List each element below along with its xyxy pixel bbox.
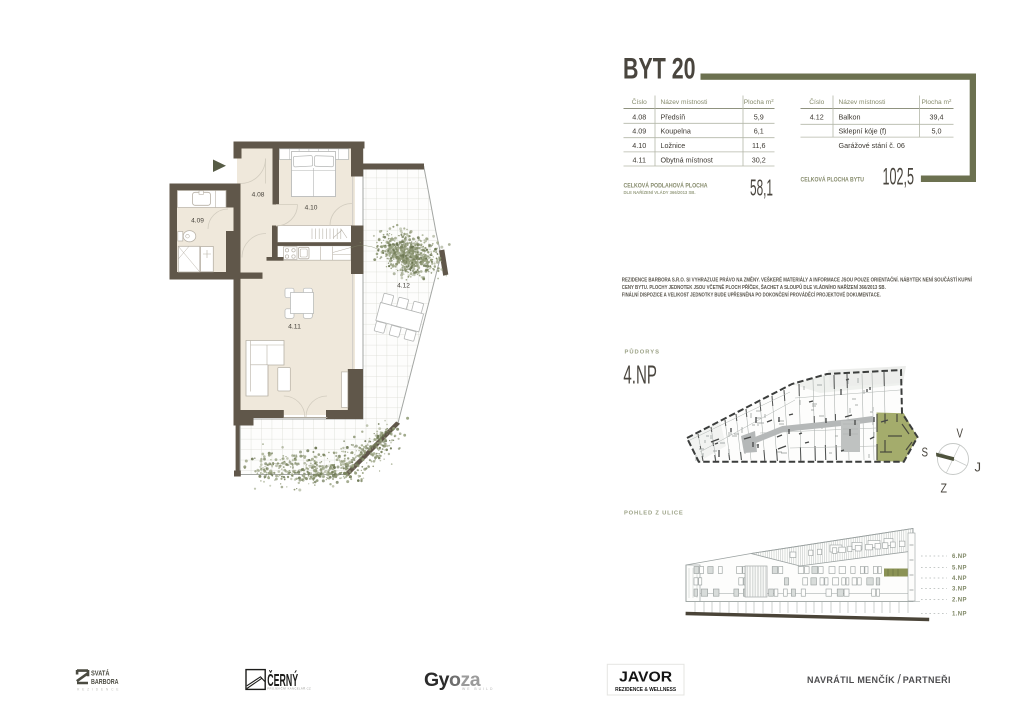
svg-text:4.12: 4.12 [810, 112, 824, 121]
svg-text:5,9: 5,9 [754, 112, 764, 121]
svg-text:Balkon: Balkon [839, 112, 861, 121]
svg-text:REZIDENCE: REZIDENCE [77, 687, 121, 691]
svg-text:BARBORA: BARBORA [91, 677, 119, 686]
svg-text:Z: Z [941, 482, 948, 496]
svg-text:REZIDENCE BARBORA S.R.O. SI VY: REZIDENCE BARBORA S.R.O. SI VYHRAZUJE PR… [622, 276, 972, 284]
svg-text:JAVOR: JAVOR [619, 670, 673, 686]
svg-text:Sklepní kóje (f): Sklepní kóje (f) [839, 127, 887, 136]
svg-text:2.NP: 2.NP [952, 598, 967, 604]
svg-text:5.NP: 5.NP [952, 566, 967, 572]
svg-text:NAVRÁTIL MENČÍK/PARTNEŘI: NAVRÁTIL MENČÍK/PARTNEŘI [807, 673, 951, 687]
svg-text:4.11: 4.11 [633, 156, 646, 165]
svg-text:Číslo: Číslo [632, 97, 647, 106]
svg-text:POHLED Z ULICE: POHLED Z ULICE [624, 511, 684, 517]
svg-text:4.08: 4.08 [252, 192, 265, 199]
svg-text:Plocha m2: Plocha m2 [922, 98, 953, 106]
svg-text:4.09: 4.09 [632, 127, 646, 136]
svg-text:6.NP: 6.NP [952, 554, 967, 560]
svg-text:11,6: 11,6 [752, 141, 765, 150]
svg-text:BYT 20: BYT 20 [623, 53, 696, 86]
svg-text:4.11: 4.11 [288, 324, 301, 331]
svg-text:4.10: 4.10 [632, 141, 646, 150]
svg-text:CENY BYTU. PLOCHY JEDNOTEK JSO: CENY BYTU. PLOCHY JEDNOTEK JSOU VČETNĚ P… [622, 283, 886, 291]
svg-text:Název místnosti: Název místnosti [661, 99, 708, 106]
svg-text:CELKOVÁ PODLAHOVÁ PLOCHA: CELKOVÁ PODLAHOVÁ PLOCHA [624, 181, 708, 190]
svg-text:PŮDORYS: PŮDORYS [625, 347, 660, 355]
svg-text:J: J [975, 461, 982, 475]
svg-text:PROJEKČNÍ KANCELÁŘ.CZ: PROJEKČNÍ KANCELÁŘ.CZ [267, 685, 311, 690]
svg-text:Obytná místnost: Obytná místnost [661, 156, 713, 165]
svg-text:4.NP: 4.NP [952, 576, 967, 582]
svg-text:Ložnice: Ložnice [661, 141, 686, 150]
svg-text:Garážové stání č. 06: Garážové stání č. 06 [839, 141, 905, 150]
svg-text:102,5: 102,5 [883, 164, 915, 191]
svg-text:3.NP: 3.NP [952, 587, 967, 593]
svg-text:4.NP: 4.NP [623, 360, 657, 390]
svg-text:6,1: 6,1 [754, 127, 764, 136]
svg-text:58,1: 58,1 [750, 175, 773, 201]
svg-text:WE BUILD: WE BUILD [462, 687, 494, 691]
svg-text:DLE NAŘÍZENÍ VLÁDY 366/2013 SB: DLE NAŘÍZENÍ VLÁDY 366/2013 SB. [624, 190, 696, 195]
svg-text:Číslo: Číslo [809, 97, 824, 106]
svg-text:4.12: 4.12 [397, 283, 410, 290]
svg-text:CELKOVÁ PLOCHA BYTU: CELKOVÁ PLOCHA BYTU [801, 175, 865, 184]
svg-text:4.09: 4.09 [191, 218, 204, 225]
svg-text:4.08: 4.08 [632, 112, 646, 121]
svg-text:REZIDENCE & WELLNESS: REZIDENCE & WELLNESS [615, 687, 676, 693]
svg-text:S: S [922, 446, 929, 460]
svg-text:FINÁLNÍ DISPOZICE A VELIKOST J: FINÁLNÍ DISPOZICE A VELIKOST JEDNOTKY BU… [622, 291, 881, 299]
svg-text:Název místnosti: Název místnosti [839, 99, 886, 106]
svg-text:Koupelna: Koupelna [661, 127, 691, 136]
svg-text:V: V [957, 427, 964, 441]
svg-text:4.10: 4.10 [305, 205, 318, 212]
svg-text:30,2: 30,2 [752, 156, 766, 165]
svg-text:39,4: 39,4 [930, 112, 944, 121]
svg-text:5,0: 5,0 [932, 127, 942, 136]
svg-text:1.NP: 1.NP [952, 612, 967, 618]
svg-text:Plocha m2: Plocha m2 [744, 98, 775, 106]
svg-text:Předsíň: Předsíň [661, 112, 686, 121]
